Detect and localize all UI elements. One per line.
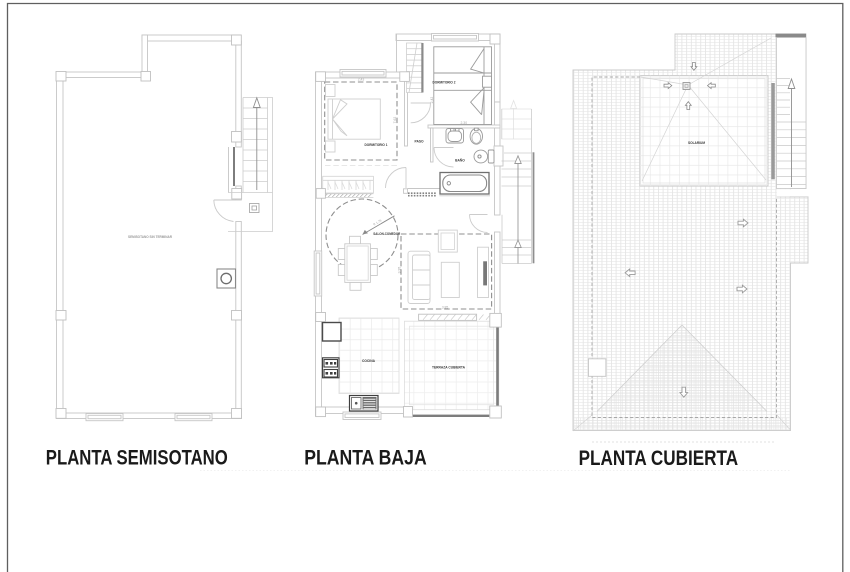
svg-text:PLANTA SEMISOTANO: PLANTA SEMISOTANO [46,445,228,469]
svg-text:SALON-COMEDOR: SALON-COMEDOR [373,232,400,236]
svg-text:2,43: 2,43 [358,78,365,82]
svg-text:BAÑO: BAÑO [455,157,465,162]
svg-text:3,95: 3,95 [398,267,402,274]
svg-text:PASO: PASO [415,140,425,144]
svg-text:PLANTA CUBIERTA: PLANTA CUBIERTA [579,446,739,470]
svg-text:DORMITORIO 2: DORMITORIO 2 [433,80,456,84]
svg-text:SOLARIUM: SOLARIUM [688,141,705,145]
svg-text:3,85: 3,85 [442,306,449,310]
svg-text:DORMITORIO 1: DORMITORIO 1 [365,143,388,147]
svg-text:2,30: 2,30 [460,121,467,125]
svg-text:TERRAZA CUBIERTA: TERRAZA CUBIERTA [432,366,466,370]
svg-text:2,42: 2,42 [430,97,434,104]
svg-text:PLANTA BAJA: PLANTA BAJA [304,445,427,469]
svg-text:COCINA: COCINA [362,359,376,363]
svg-text:SEMISOTANO SIN TERMINAR: SEMISOTANO SIN TERMINAR [128,235,172,239]
svg-text:7,62: 7,62 [393,117,397,124]
